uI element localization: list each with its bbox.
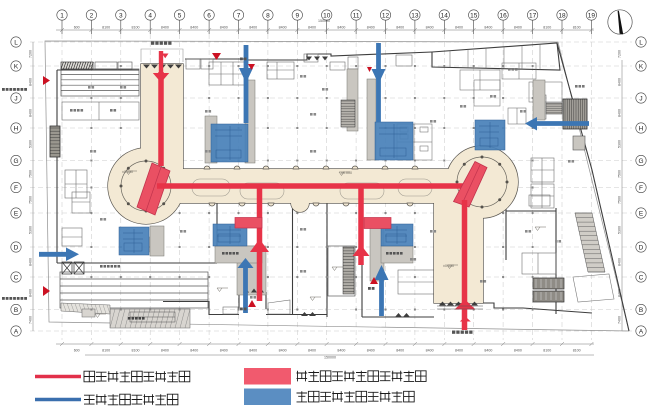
svg-text:18: 18 — [558, 12, 566, 19]
svg-text:7500: 7500 — [29, 196, 33, 204]
svg-text:7400: 7400 — [29, 316, 33, 324]
svg-text:J: J — [639, 95, 642, 102]
svg-text:D: D — [14, 244, 19, 251]
svg-text:6: 6 — [207, 12, 211, 19]
svg-text:L: L — [639, 39, 643, 46]
svg-text:15: 15 — [470, 12, 478, 19]
svg-text:F: F — [639, 185, 643, 192]
svg-text:150000: 150000 — [324, 356, 336, 360]
svg-text:G: G — [13, 158, 18, 165]
svg-text:7500: 7500 — [29, 170, 33, 178]
svg-text:8400: 8400 — [249, 26, 257, 30]
svg-text:A: A — [639, 328, 644, 335]
svg-text:H: H — [14, 125, 19, 132]
svg-text:E: E — [14, 210, 19, 217]
svg-text:8400: 8400 — [367, 26, 375, 30]
svg-text:±0.000: ±0.000 — [443, 264, 454, 268]
svg-text:8400: 8400 — [190, 349, 198, 353]
svg-text:600: 600 — [74, 26, 80, 30]
svg-text:8400: 8400 — [190, 26, 198, 30]
svg-text:17: 17 — [529, 12, 537, 19]
svg-text:8400: 8400 — [426, 26, 434, 30]
svg-text:7500: 7500 — [618, 170, 622, 178]
svg-text:8400: 8400 — [514, 349, 522, 353]
svg-text:8400: 8400 — [29, 78, 33, 86]
svg-text:9: 9 — [295, 12, 299, 19]
svg-text:±0.000: ±0.000 — [122, 170, 133, 174]
svg-text:8100: 8100 — [102, 26, 110, 30]
svg-text:H: H — [639, 125, 644, 132]
svg-text:8400: 8400 — [514, 26, 522, 30]
svg-text:8400: 8400 — [426, 349, 434, 353]
svg-text:8400: 8400 — [618, 109, 622, 117]
svg-text:8400: 8400 — [337, 349, 345, 353]
svg-text:5: 5 — [178, 12, 182, 19]
svg-text:3: 3 — [119, 12, 123, 19]
svg-text:G: G — [638, 158, 643, 165]
svg-text:8400: 8400 — [161, 26, 169, 30]
svg-text:B: B — [14, 307, 18, 314]
svg-text:8400: 8400 — [29, 109, 33, 117]
svg-text:D: D — [639, 244, 644, 251]
svg-text:E: E — [639, 210, 644, 217]
svg-text:150000: 150000 — [318, 19, 330, 23]
svg-text:8400: 8400 — [308, 349, 316, 353]
svg-text:16: 16 — [499, 12, 507, 19]
svg-text:8400: 8400 — [618, 78, 622, 86]
svg-text:L: L — [14, 39, 18, 46]
svg-text:8100: 8100 — [132, 26, 140, 30]
svg-text:F: F — [14, 185, 18, 192]
svg-text:1: 1 — [60, 12, 64, 19]
svg-text:K: K — [14, 63, 19, 70]
svg-text:8100: 8100 — [543, 349, 551, 353]
svg-text:8400: 8400 — [618, 258, 622, 266]
svg-text:8400: 8400 — [455, 26, 463, 30]
svg-text:8400: 8400 — [220, 26, 228, 30]
svg-text:8400: 8400 — [161, 349, 169, 353]
svg-text:8400: 8400 — [308, 26, 316, 30]
svg-text:12: 12 — [382, 12, 390, 19]
svg-text:8100: 8100 — [132, 349, 140, 353]
svg-text:13: 13 — [411, 12, 419, 19]
svg-text:8400: 8400 — [455, 349, 463, 353]
svg-text:8400: 8400 — [396, 26, 404, 30]
svg-text:8100: 8100 — [102, 349, 110, 353]
svg-text:8400: 8400 — [484, 349, 492, 353]
svg-text:C: C — [639, 274, 644, 281]
svg-text:K: K — [639, 63, 644, 70]
svg-text:2: 2 — [90, 12, 94, 19]
svg-text:8400: 8400 — [29, 289, 33, 297]
svg-text:19: 19 — [588, 12, 596, 19]
svg-text:8: 8 — [266, 12, 270, 19]
svg-text:7: 7 — [237, 12, 241, 19]
svg-text:7200: 7200 — [29, 50, 33, 58]
svg-text:C: C — [14, 274, 19, 281]
svg-text:±0.000: ±0.000 — [341, 171, 352, 175]
svg-text:11: 11 — [353, 12, 360, 19]
svg-text:8400: 8400 — [249, 349, 257, 353]
svg-text:8400: 8400 — [279, 349, 287, 353]
svg-text:7400: 7400 — [618, 316, 622, 324]
svg-text:8100: 8100 — [573, 349, 581, 353]
svg-text:5300: 5300 — [618, 226, 622, 234]
svg-text:5300: 5300 — [29, 226, 33, 234]
svg-text:4: 4 — [148, 12, 152, 19]
svg-text:J: J — [14, 95, 17, 102]
svg-text:14: 14 — [441, 12, 449, 19]
svg-text:8100: 8100 — [573, 26, 581, 30]
svg-text:5300: 5300 — [618, 140, 622, 148]
svg-text:600: 600 — [74, 349, 80, 353]
svg-text:8400: 8400 — [484, 26, 492, 30]
svg-text:B: B — [639, 307, 643, 314]
svg-text:8400: 8400 — [337, 26, 345, 30]
svg-text:8400: 8400 — [367, 349, 375, 353]
svg-text:7200: 7200 — [618, 50, 622, 58]
svg-text:8400: 8400 — [220, 349, 228, 353]
svg-text:7500: 7500 — [618, 196, 622, 204]
svg-text:A: A — [14, 328, 19, 335]
svg-text:8400: 8400 — [29, 258, 33, 266]
svg-text:8400: 8400 — [279, 26, 287, 30]
svg-text:8400: 8400 — [396, 349, 404, 353]
svg-text:8100: 8100 — [543, 26, 551, 30]
svg-text:5300: 5300 — [29, 140, 33, 148]
